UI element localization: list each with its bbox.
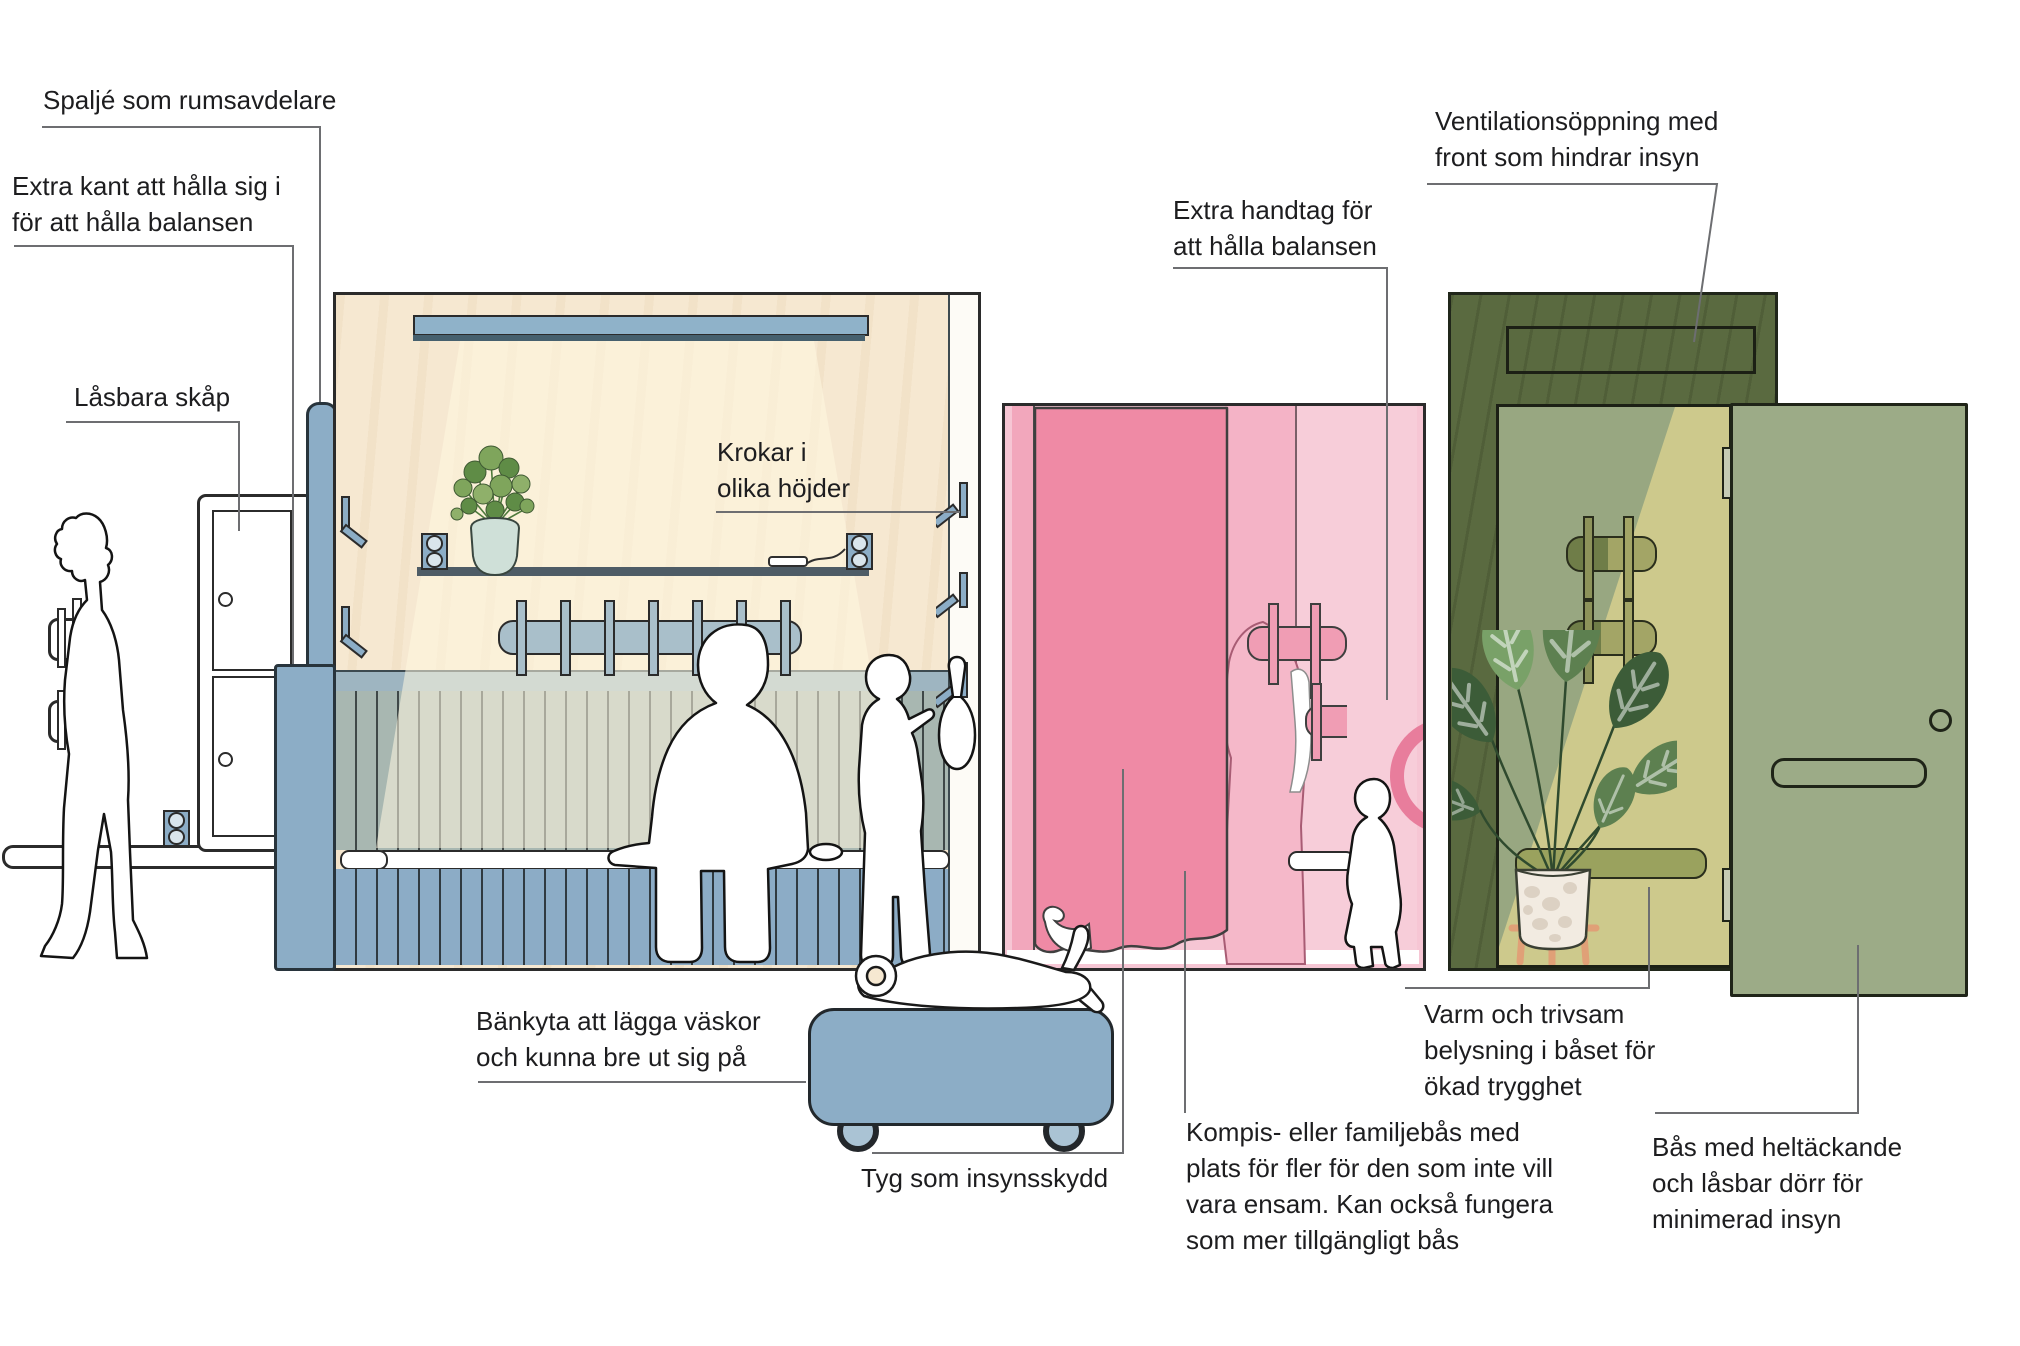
ceiling-light	[413, 315, 869, 336]
locker-knob	[218, 592, 233, 607]
infographic-canvas: Spaljé som rumsavdelare Extra kant att h…	[0, 0, 2020, 1346]
label-ventilation: Ventilationsöppning med front som hindra…	[1435, 103, 1718, 175]
booth-hook-pin	[1583, 516, 1594, 600]
curtain	[1035, 408, 1227, 952]
booth-hook-pin	[1268, 603, 1279, 685]
toddler-silhouette	[1335, 776, 1413, 968]
ceiling-light-shade	[413, 335, 865, 341]
ventilation-opening	[1506, 326, 1756, 374]
bench-bar-end	[340, 850, 388, 870]
hook-pin	[516, 600, 527, 676]
sitting-adult-silhouette	[598, 615, 848, 967]
label-extra-kant: Extra kant att hålla sig i för att hålla…	[12, 168, 281, 240]
label-bankyta: Bänkyta att lägga väskor och kunna bre u…	[476, 1003, 761, 1075]
door-handle	[1771, 758, 1927, 788]
side-hooks-left	[338, 495, 378, 685]
label-kompis: Kompis- eller familjebås med plats för f…	[1186, 1114, 1553, 1258]
trolley-bench	[808, 1008, 1114, 1126]
family-booth	[1002, 403, 1426, 971]
label-spalje: Spaljé som rumsavdelare	[43, 82, 336, 118]
label-tyg: Tyg som insynsskydd	[861, 1160, 1108, 1196]
monstera-plant	[1452, 630, 1677, 965]
label-bas-dorr: Bås med heltäckande och låsbar dörr för …	[1652, 1129, 1902, 1237]
changing-room	[333, 292, 981, 971]
hook-pin	[560, 600, 571, 676]
door-lock-indicator	[1929, 709, 1952, 732]
booth-hook-pin	[1623, 516, 1634, 600]
label-varm: Varm och trivsam belysning i båset för ö…	[1424, 996, 1655, 1104]
pilea-plant	[443, 428, 548, 576]
bag-on-bench	[838, 912, 1108, 1020]
walking-person-silhouette	[35, 508, 165, 968]
booth-hook-rail-upper	[1566, 536, 1657, 572]
phone-with-cable	[761, 535, 871, 569]
label-extra-handtag: Extra handtag för att hålla balansen	[1173, 192, 1377, 264]
locking-door	[1730, 403, 1968, 997]
hanging-bag	[931, 653, 981, 773]
locker-knob	[218, 752, 233, 767]
booth-hook-rail	[1247, 626, 1347, 661]
power-outlet	[163, 810, 190, 847]
booth-hook-pin	[1311, 683, 1322, 761]
locker-door-top	[212, 510, 292, 671]
label-lasbara-skap: Låsbara skåp	[74, 379, 230, 415]
label-krokar: Krokar i olika höjder	[717, 434, 850, 506]
grab-edge-panel	[274, 664, 336, 971]
